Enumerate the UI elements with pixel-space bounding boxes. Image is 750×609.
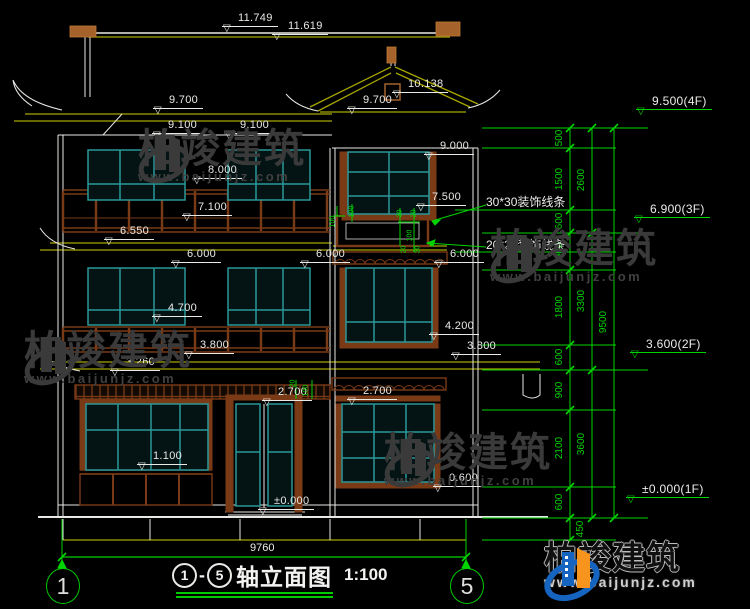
overall-width-dim: 9760 [250,542,274,554]
axis-bubble-5: 5 [450,568,484,604]
small-dimension: 100 [330,209,337,235]
elevation-marker: 9.000▽ [424,140,474,155]
title-dash: - [199,565,205,586]
elevation-marker: 11.749▽ [222,12,278,27]
elevation-marker: 6.000▽ [434,248,484,263]
small-dimension: 100 [407,223,414,249]
drawing-title: 1 - 5 轴立面图 1:100 [172,558,387,592]
elevation-marker: 4.700▽ [152,302,202,317]
deco-30x30-annotation: 30*30装饰线条 [486,193,565,210]
elevation-marker: 11.619▽ [272,20,328,35]
elevation-marker: ±0.000(1F)▽ [626,483,709,498]
brand-logo: 柏竣建筑 www.baijunjz.com [544,540,697,590]
title-scale: 1:100 [344,565,387,585]
title-name: 轴立面图 [236,558,332,592]
elevation-marker: 3.600(2F)▽ [630,338,706,353]
elevation-marker: 8.000▽ [192,164,242,179]
title-underline-1 [176,592,333,594]
title-axis-to-circle: 5 [207,563,232,588]
brand-logo-icon [544,540,602,604]
elevation-marker: 6.000▽ [171,248,221,263]
chain-dimension: 2600 [577,158,587,202]
axis-bubble-1: 1 [46,568,80,604]
elevation-marker: 0.600▽ [433,472,483,487]
elevation-marker: 9.100▽ [152,119,202,134]
chain-dimension: 9500 [599,300,609,344]
chain-dimension: 600 [555,480,565,524]
elevation-marker: 9.700▽ [153,94,203,109]
title-underline-2 [176,596,333,598]
small-dimension: 20 [290,371,297,397]
elevation-marker: 9.700▽ [347,94,397,109]
elevation-marker: 10.138▽ [392,78,448,93]
chain-dimension: 3600 [577,422,587,466]
elevation-marker: ±0.000▽ [258,495,314,510]
elevation-marker: 3.800▽ [184,339,234,354]
elevation-marker: 7.100▽ [182,201,232,216]
small-dimension: 30 [397,201,404,227]
elevation-marker: 3.260▽ [110,356,160,371]
axis-bubble-1-label: 1 [57,573,70,600]
elevation-marker: 3.800▽ [451,340,501,355]
elevation-marker: 9.500(4F)▽ [636,95,712,110]
elevation-marker: 6.550▽ [104,225,154,240]
elevation-marker: 7.500▽ [416,191,466,206]
small-dimension: 100 [303,378,310,404]
axis-bubble-5-label: 5 [461,573,474,600]
elevation-marker: 6.000▽ [300,248,350,263]
chain-dimension: 3300 [577,279,587,323]
elevation-marker: 2.700▽ [347,385,397,400]
chain-dimension: 500 [555,116,565,160]
chain-dimension: 2100 [555,426,565,470]
title-axis-from-circle: 1 [172,563,197,588]
small-dimension: 100 [349,199,356,225]
elevation-marker: 4.200▽ [429,320,479,335]
small-dimension: 30 [415,237,422,263]
elevation-drawing [0,0,750,609]
deco-20x20-annotation: 20*20装饰线条 [486,236,565,253]
cad-elevation-screenshot: 11.749▽11.619▽10.138▽9.700▽9.700▽9.100▽9… [0,0,750,609]
chain-dimension: 1800 [555,285,565,329]
elevation-marker: 6.900(3F)▽ [634,203,710,218]
elevation-marker: 9.100▽ [224,119,274,134]
chain-dimension: 900 [555,368,565,412]
small-dimension: 20 [401,237,408,263]
elevation-marker: 1.100▽ [137,450,187,465]
